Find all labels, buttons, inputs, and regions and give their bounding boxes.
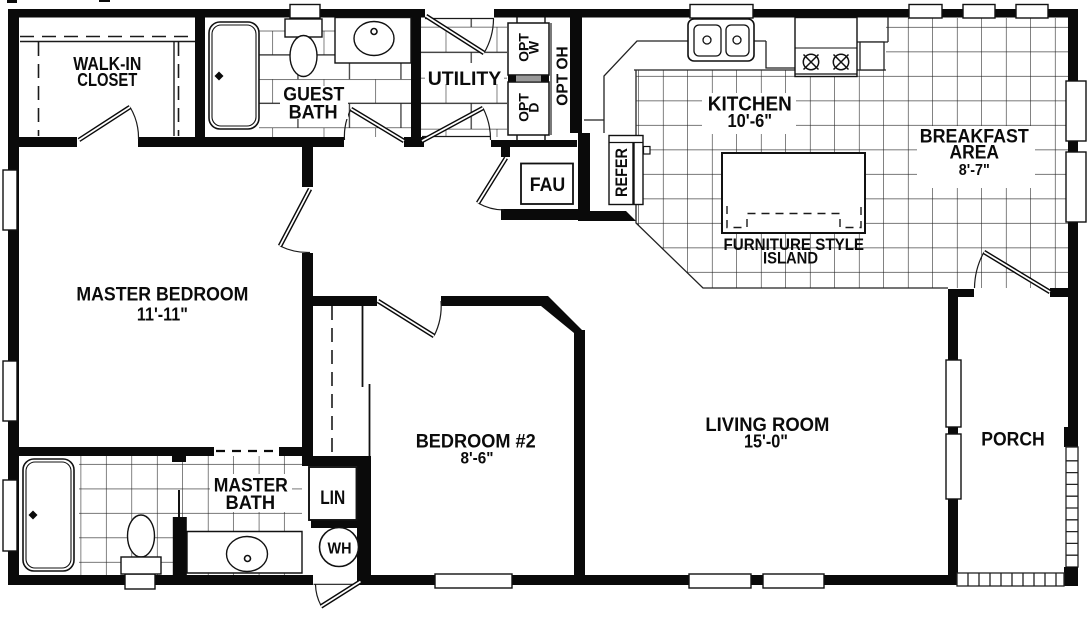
svg-text:D: D	[526, 102, 542, 112]
svg-text:REFER: REFER	[613, 148, 631, 197]
svg-text:LIN: LIN	[320, 488, 345, 509]
svg-text:AREA: AREA	[950, 142, 1000, 163]
svg-text:UTILITY: UTILITY	[428, 69, 502, 90]
svg-text:10'-6": 10'-6"	[728, 111, 773, 131]
svg-text:BATH: BATH	[289, 102, 338, 123]
svg-text:8'-7": 8'-7"	[959, 162, 990, 179]
svg-text:MASTER BEDROOM: MASTER BEDROOM	[76, 285, 248, 306]
svg-text:15'-0": 15'-0"	[744, 432, 788, 452]
svg-text:BATH: BATH	[226, 493, 276, 514]
svg-text:ISLAND: ISLAND	[763, 249, 818, 268]
svg-text:CLOSET: CLOSET	[77, 70, 137, 90]
svg-text:WH: WH	[328, 541, 352, 558]
svg-text:8'-6": 8'-6"	[461, 449, 494, 468]
svg-text:W: W	[526, 40, 542, 54]
svg-text:PORCH: PORCH	[981, 429, 1045, 450]
svg-text:OPT OH: OPT OH	[555, 46, 572, 105]
svg-text:11'-11": 11'-11"	[137, 304, 188, 324]
svg-text:FAU: FAU	[530, 174, 566, 196]
